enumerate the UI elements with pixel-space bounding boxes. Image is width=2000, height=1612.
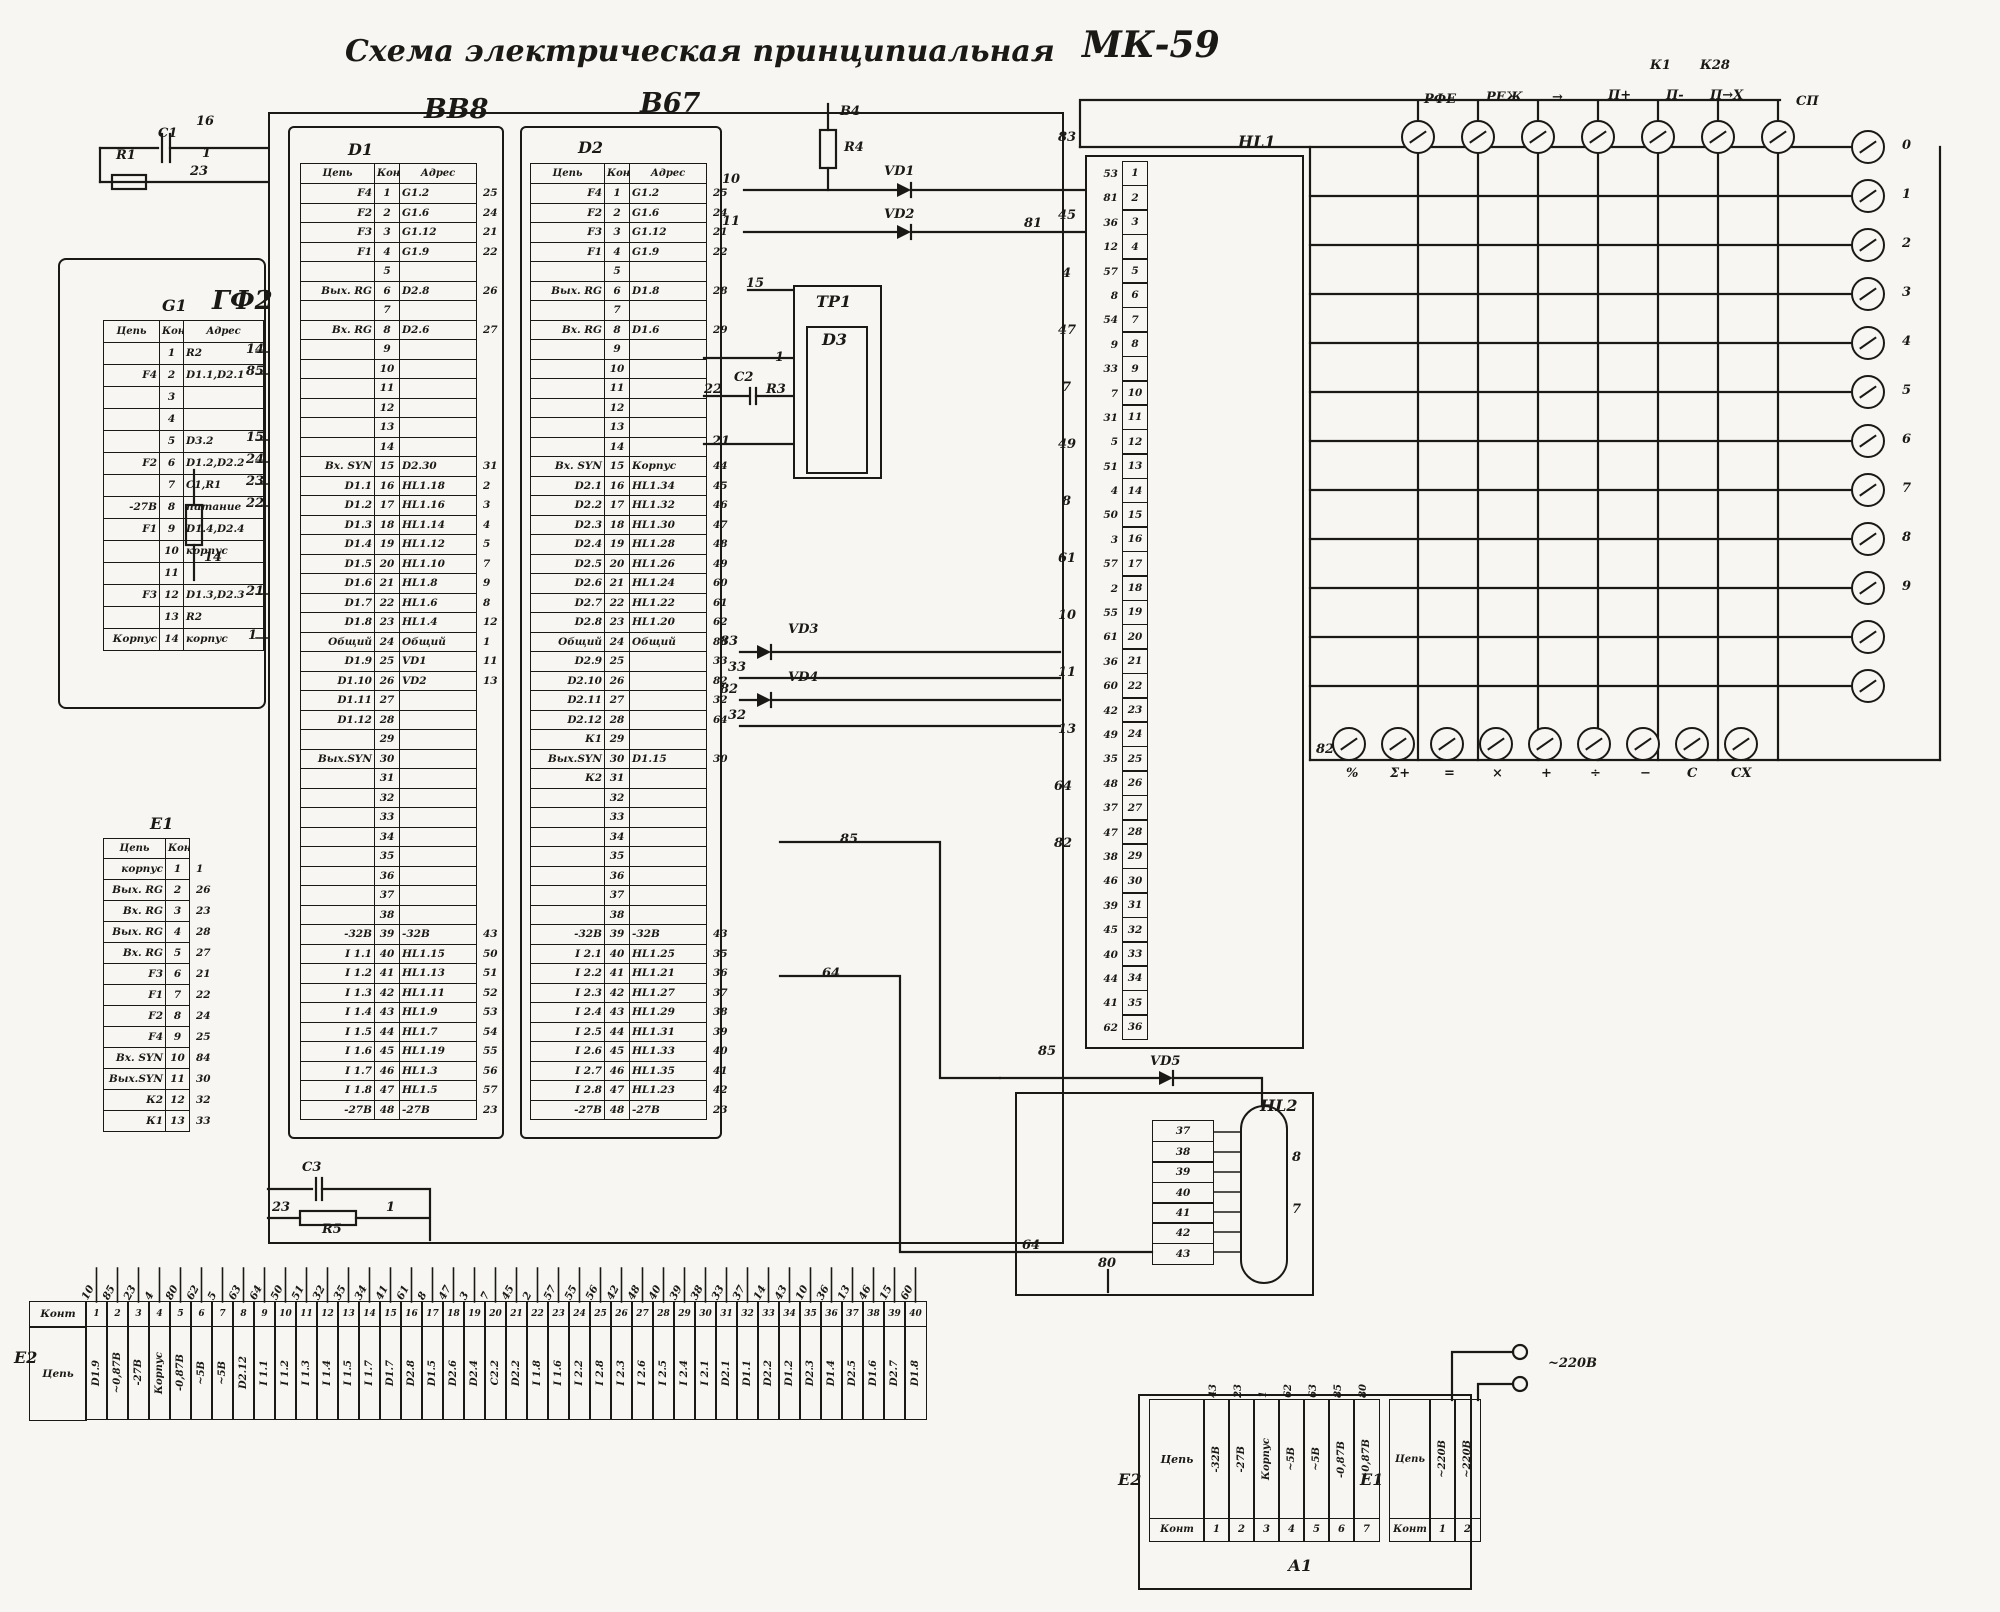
address xyxy=(400,886,477,906)
table-row: F1 9 D1.4,D2.4 xyxy=(104,519,264,541)
key-button[interactable] xyxy=(1479,727,1513,761)
key-button[interactable] xyxy=(1641,120,1675,154)
wire-number: 62 xyxy=(707,613,737,633)
address: HL1.31 xyxy=(630,1022,707,1042)
wire-number-cell: 1 xyxy=(1254,1368,1279,1400)
signal-name: F2 xyxy=(104,453,160,475)
pin-number: 21 xyxy=(605,574,630,594)
hl1-pin-row: 46 30 xyxy=(1090,869,1148,893)
address: HL1.10 xyxy=(400,554,477,574)
signal-cell: ~220В xyxy=(1454,1399,1481,1519)
pin-number: 31 xyxy=(605,769,630,789)
pin-number: 23 xyxy=(375,613,400,633)
wire-number: 23 xyxy=(477,1100,507,1120)
key-button[interactable] xyxy=(1528,727,1562,761)
key-button[interactable] xyxy=(1851,375,1885,409)
col-header-kont: Конт xyxy=(1149,1518,1205,1542)
signal-cell: D2.1 xyxy=(715,1326,738,1420)
key-button[interactable] xyxy=(1851,179,1885,213)
d3-label: D3 xyxy=(822,330,847,349)
pin-number: 19 xyxy=(1122,600,1148,626)
table-row: 5 D3.2 xyxy=(104,431,264,453)
pin-number: 6 xyxy=(605,281,630,301)
hl1-pin-row: 62 36 xyxy=(1090,1016,1148,1040)
signal-cell: I 1.6 xyxy=(547,1326,570,1420)
pin-number: 11 xyxy=(375,379,400,399)
wire-number-cell: 85 xyxy=(1329,1368,1354,1400)
pin-number: 45 xyxy=(605,1042,630,1062)
key-button[interactable] xyxy=(1851,424,1885,458)
g1-label: G1 xyxy=(162,296,187,315)
pin-number: 48 xyxy=(605,1100,630,1120)
table-row: Вх. RG 5 27 xyxy=(104,943,222,964)
table-row: 33 xyxy=(531,808,737,828)
pin-number: 32 xyxy=(605,788,630,808)
wire-number: 30 xyxy=(707,749,737,769)
key-button[interactable] xyxy=(1851,228,1885,262)
signal-name: D2.3 xyxy=(531,515,605,535)
signal-name: F2 xyxy=(531,203,605,223)
wire-number: 27 xyxy=(477,320,507,340)
table-row: D1.3 18 HL1.14 4 xyxy=(301,515,507,535)
address: HL1.15 xyxy=(400,944,477,964)
signal-name: Общий xyxy=(301,632,375,652)
wire-number: 55 xyxy=(1090,601,1122,625)
signal-name xyxy=(531,886,605,906)
signal-name: Вых.SYN xyxy=(104,1069,166,1090)
table-row: D2.9 25 33 xyxy=(531,652,737,672)
key-button[interactable] xyxy=(1401,120,1435,154)
pin-number: 27 xyxy=(605,691,630,711)
key-button[interactable] xyxy=(1851,669,1885,703)
col-header-cep: Цепь xyxy=(1389,1399,1431,1519)
d1-pin-table: Цепь Конт Адрес F4 1 G1.2 25 F2 2 G1.6 2… xyxy=(300,163,507,1120)
table-row: 13 xyxy=(301,418,507,438)
pin-number: 40 xyxy=(605,944,630,964)
wire-number: 41 xyxy=(707,1061,737,1081)
address: HL1.25 xyxy=(630,944,707,964)
signal-cell: ~5В xyxy=(1278,1399,1305,1519)
signal-cell: C2.2 xyxy=(484,1326,507,1420)
pin-number: 4 xyxy=(1278,1518,1305,1542)
signal-name: I 1.1 xyxy=(301,944,375,964)
signal-name xyxy=(531,788,605,808)
tr1-label: ТР1 xyxy=(816,292,851,311)
pin-number: 27 xyxy=(1122,795,1148,821)
d2-pin-table: Цепь Конт Адрес F4 1 G1.2 25 F2 2 G1.6 2… xyxy=(530,163,737,1120)
pin-number: 23 xyxy=(1122,697,1148,723)
table-row: I 2.7 46 HL1.35 41 xyxy=(531,1061,737,1081)
pin-number: 28 xyxy=(652,1301,675,1327)
e2-long-header: Конт Цепь xyxy=(30,1302,86,1420)
signal-name xyxy=(531,437,605,457)
address xyxy=(630,886,707,906)
pin-number: 3 xyxy=(1253,1518,1280,1542)
signal-name: К1 xyxy=(531,730,605,750)
signal-cell: D1.7 xyxy=(379,1326,402,1420)
table-row: 32 xyxy=(301,788,507,808)
pin-number: 13 xyxy=(605,418,630,438)
table-row: -27В 48 -27В 23 xyxy=(531,1100,737,1120)
pin-number: 31 xyxy=(375,769,400,789)
signal-name xyxy=(301,847,375,867)
pin-number: 43 xyxy=(605,1003,630,1023)
key-button[interactable] xyxy=(1851,277,1885,311)
wire-number: 36 xyxy=(707,964,737,984)
signal-cell: ~220В xyxy=(1429,1399,1456,1519)
pin-number: 1 xyxy=(166,859,190,880)
a1-label: А1 xyxy=(1288,1556,1312,1575)
table-row: D1.8 23 HL1.4 12 xyxy=(301,613,507,633)
wire-number xyxy=(707,379,737,399)
hl1-pin-row: 44 34 xyxy=(1090,967,1148,991)
key-button[interactable] xyxy=(1724,727,1758,761)
page-title: Схема электрическая принципиальная xyxy=(345,34,1055,69)
pin-number: 7 xyxy=(605,301,630,321)
connector-column: 15 39 D2.7 xyxy=(884,1260,905,1419)
key-button[interactable] xyxy=(1701,120,1735,154)
wire-number xyxy=(477,262,507,282)
wire-number: 21 xyxy=(707,223,737,243)
table-row: I 1.8 47 HL1.5 57 xyxy=(301,1081,507,1101)
wire-number xyxy=(477,788,507,808)
pin-number: 6 xyxy=(166,964,190,985)
signal-cell: ~5В xyxy=(1303,1399,1330,1519)
address: -27В xyxy=(400,1100,477,1120)
wire-number: 25 xyxy=(707,184,737,204)
signal-cell: D1.5 xyxy=(421,1326,444,1420)
address: R2 xyxy=(184,607,264,629)
signal-name: I 1.7 xyxy=(301,1061,375,1081)
table-row: К1 29 xyxy=(531,730,737,750)
signal-name: корпус xyxy=(104,859,166,880)
pin-number: 29 xyxy=(1122,843,1148,869)
pin-number: 26 xyxy=(610,1301,633,1327)
address xyxy=(400,301,477,321)
signal-name xyxy=(301,379,375,399)
wire-number: 42 xyxy=(707,1081,737,1101)
table-row: 11 xyxy=(531,379,737,399)
pin-number: 38 xyxy=(862,1301,885,1327)
wire-number: 61 xyxy=(1090,625,1122,649)
signal-name xyxy=(301,730,375,750)
wire-number: 5 xyxy=(1090,430,1122,454)
pin-number: 6 xyxy=(160,453,184,475)
key-button[interactable] xyxy=(1381,727,1415,761)
table-row: D2.1 16 HL1.34 45 xyxy=(531,476,737,496)
wire-number: 2 xyxy=(477,476,507,496)
signal-name: -27В xyxy=(104,497,160,519)
signal-name: F3 xyxy=(531,223,605,243)
key-button[interactable] xyxy=(1851,620,1885,654)
e2-br-label: Е2 xyxy=(1118,1470,1141,1489)
address: -27В xyxy=(630,1100,707,1120)
table-row: 11 xyxy=(301,379,507,399)
wire-number: 1 xyxy=(190,859,222,880)
wire-number: 40 xyxy=(1090,943,1122,967)
pin-number: 2 xyxy=(166,880,190,901)
pin-number: 15 xyxy=(1122,502,1148,528)
address: HL1.34 xyxy=(630,476,707,496)
table-row: корпус 1 1 xyxy=(104,859,222,880)
connector-column: 50 10 I 1.2 xyxy=(275,1260,296,1419)
col-header-adres: Адрес xyxy=(184,321,264,343)
signal-name: F4 xyxy=(531,184,605,204)
d1-label: D1 xyxy=(348,140,373,159)
key-button[interactable] xyxy=(1461,120,1495,154)
table-row: 12 xyxy=(301,398,507,418)
table-row: 5 xyxy=(301,262,507,282)
table-row: D2.12 28 64 xyxy=(531,710,737,730)
wire-number: 49 xyxy=(1090,723,1122,747)
connector-column: 39 29 I 2.4 xyxy=(674,1260,695,1419)
wire-number: 33 xyxy=(190,1111,222,1132)
table-row: D2.11 27 32 xyxy=(531,691,737,711)
table-row: 14 xyxy=(531,437,737,457)
signal-name xyxy=(104,431,160,453)
address: HL1.22 xyxy=(630,593,707,613)
wire-number xyxy=(477,827,507,847)
pin-number: 46 xyxy=(605,1061,630,1081)
hl1-pin-row: 42 23 xyxy=(1090,699,1148,723)
wire-number: 57 xyxy=(477,1081,507,1101)
address xyxy=(630,730,707,750)
wire-number: 23 xyxy=(190,901,222,922)
signal-cell: I 2.3 xyxy=(610,1326,633,1420)
signal-name: I 2.1 xyxy=(531,944,605,964)
pin-number: 8 xyxy=(375,320,400,340)
signal-name: F4 xyxy=(301,184,375,204)
table-row: F3 3 G1.12 21 xyxy=(531,223,737,243)
table-row: I 1.5 44 HL1.7 54 xyxy=(301,1022,507,1042)
table-row: D1.5 20 HL1.10 7 xyxy=(301,554,507,574)
table-row: -32В 39 -32В 43 xyxy=(301,925,507,945)
pin-number: 12 xyxy=(1122,429,1148,455)
signal-cell: Корпус xyxy=(1253,1399,1280,1519)
connector-column: 62 6 ~5В xyxy=(191,1260,212,1419)
pin-number: 37 xyxy=(841,1301,864,1327)
pin-number: 19 xyxy=(605,535,630,555)
wire-number: 4 xyxy=(1090,479,1122,503)
pin-number: 34 xyxy=(1122,965,1148,991)
keyboard-digit-column xyxy=(1851,130,1885,703)
signal-cell: I 2.5 xyxy=(652,1326,675,1420)
key-button[interactable] xyxy=(1521,120,1555,154)
key-button[interactable] xyxy=(1851,571,1885,605)
address xyxy=(400,710,477,730)
pin-number: 33 xyxy=(375,808,400,828)
signal-cell: D2.2 xyxy=(505,1326,528,1420)
address xyxy=(630,808,707,828)
col-header-kont: Конт xyxy=(375,164,400,184)
hl1-pin-row: 54 7 xyxy=(1090,308,1148,332)
e1-connector-table: Цепь Конт корпус 1 1 Вых. RG 2 26 Вх. RG… xyxy=(103,838,222,1132)
wire-number: 3 xyxy=(477,496,507,516)
address: HL1.32 xyxy=(630,496,707,516)
col-header-kont: Конт xyxy=(160,321,184,343)
wire-number xyxy=(477,359,507,379)
pin-number: 12 xyxy=(166,1090,190,1111)
table-row: 5 xyxy=(531,262,737,282)
pin-number: 24 xyxy=(375,632,400,652)
connector-column: 56 25 I 2.8 xyxy=(590,1260,611,1419)
address: D3.2 xyxy=(184,431,264,453)
pin-number: 9 xyxy=(375,340,400,360)
key-button[interactable] xyxy=(1675,727,1709,761)
wire-number: 23 xyxy=(707,1100,737,1120)
signal-name xyxy=(301,886,375,906)
hl2-pin-row: 42 xyxy=(1152,1222,1214,1244)
e2-long-table: 10 1 D1.9 85 2 ~0,87В 23 3 -27В 4 4 Корп… xyxy=(86,1260,926,1419)
wire-number: 33 xyxy=(707,652,737,672)
key-button[interactable] xyxy=(1851,326,1885,360)
d2-label: D2 xyxy=(578,138,603,157)
table-row: F4 9 25 xyxy=(104,1027,222,1048)
wire-number: 83 xyxy=(707,632,737,652)
signal-cell: D2.12 xyxy=(232,1326,255,1420)
pin-number: 35 xyxy=(1122,990,1148,1016)
wire-number: 45 xyxy=(707,476,737,496)
wire-number: 57 xyxy=(1090,552,1122,576)
signal-name: F3 xyxy=(104,964,166,985)
table-row: 1 R2 xyxy=(104,343,264,365)
pin-number: 41 xyxy=(375,964,400,984)
hl1-pin-row: 41 35 xyxy=(1090,991,1148,1015)
gf2-label: ГФ2 xyxy=(212,286,273,316)
wire-number: 24 xyxy=(477,203,507,223)
key-button[interactable] xyxy=(1430,727,1464,761)
signal-cell: I 1.8 xyxy=(526,1326,549,1420)
key-button[interactable] xyxy=(1577,727,1611,761)
signal-cell: I 2.6 xyxy=(631,1326,654,1420)
table-row: 4 xyxy=(104,409,264,431)
pin-number: 20 xyxy=(1122,624,1148,650)
table-row: К1 13 33 xyxy=(104,1111,222,1132)
pin-number: 16 xyxy=(375,476,400,496)
table-row: 32 xyxy=(531,788,737,808)
address: D2.8 xyxy=(400,281,477,301)
address: HL1.3 xyxy=(400,1061,477,1081)
hl1-pin-row: 38 29 xyxy=(1090,845,1148,869)
signal-name: F1 xyxy=(531,242,605,262)
pin-number: 17 xyxy=(375,496,400,516)
wire-number xyxy=(707,847,737,867)
key-button[interactable] xyxy=(1332,727,1366,761)
wire-number xyxy=(707,827,737,847)
g1-connector-table: Цепь Конт Адрес 1 R2 F4 2 D1.1,D2.1 3 4 xyxy=(103,320,264,651)
signal-name xyxy=(301,827,375,847)
table-row: I 1.7 46 HL1.3 56 xyxy=(301,1061,507,1081)
signal-name: D2.8 xyxy=(531,613,605,633)
address xyxy=(630,359,707,379)
signal-cell: D1.9 xyxy=(85,1326,108,1420)
signal-name xyxy=(531,262,605,282)
table-row: F3 3 G1.12 21 xyxy=(301,223,507,243)
pin-number: 12 xyxy=(316,1301,339,1327)
wire-number: 84 xyxy=(190,1048,222,1069)
address xyxy=(630,847,707,867)
table-row: 10 корпус xyxy=(104,541,264,563)
address: HL1.33 xyxy=(630,1042,707,1062)
pin-number: 14 xyxy=(1122,478,1148,504)
address xyxy=(400,437,477,457)
signal-name: F2 xyxy=(301,203,375,223)
table-row: F3 12 D1.3,D2.3 xyxy=(104,585,264,607)
signal-cell: D1.6 xyxy=(862,1326,885,1420)
signal-cell: I 2.4 xyxy=(673,1326,696,1420)
key-button[interactable] xyxy=(1851,522,1885,556)
signal-name: I 2.7 xyxy=(531,1061,605,1081)
hl2-label: HL2 xyxy=(1260,1096,1298,1115)
signal-name: D1.5 xyxy=(301,554,375,574)
pin-number: 8 xyxy=(605,320,630,340)
connector-column: 43 -32В 1 xyxy=(1204,1368,1229,1541)
wire-number: 9 xyxy=(1090,333,1122,357)
connector-column: 40 28 I 2.5 xyxy=(653,1260,674,1419)
signal-name: F4 xyxy=(104,365,160,387)
signal-name xyxy=(104,409,160,431)
wire-number: 11 xyxy=(477,652,507,672)
wire-number xyxy=(707,788,737,808)
col-header-adres: Адрес xyxy=(400,164,477,184)
key-button[interactable] xyxy=(1581,120,1615,154)
wire-number: 53 xyxy=(1090,162,1122,186)
wire-number: 60 xyxy=(707,574,737,594)
wire-number: 82 xyxy=(707,671,737,691)
connector-column: 63 8 D2.12 xyxy=(233,1260,254,1419)
table-row: 9 xyxy=(301,340,507,360)
table-row: F2 8 24 xyxy=(104,1006,222,1027)
wire-number: 2 xyxy=(1090,577,1122,601)
pin-number: 14 xyxy=(605,437,630,457)
e2-power-header: Цепь Конт xyxy=(1150,1368,1204,1541)
signal-name: I 2.5 xyxy=(531,1022,605,1042)
pin-number: 47 xyxy=(605,1081,630,1101)
key-button[interactable] xyxy=(1626,727,1660,761)
wire-number: 35 xyxy=(1090,747,1122,771)
key-button[interactable] xyxy=(1761,120,1795,154)
signal-name: К1 xyxy=(104,1111,166,1132)
hl1-pin-row: 53 1 xyxy=(1090,162,1148,186)
key-button[interactable] xyxy=(1851,473,1885,507)
wire-number xyxy=(477,749,507,769)
table-row: F2 2 G1.6 24 xyxy=(301,203,507,223)
hl1-pin-row: 45 32 xyxy=(1090,918,1148,942)
key-button[interactable] xyxy=(1851,130,1885,164)
wire-number xyxy=(477,866,507,886)
pin-number: 7 xyxy=(1122,307,1148,333)
wire-number: 12 xyxy=(477,613,507,633)
signal-name xyxy=(531,359,605,379)
signal-name: D1.11 xyxy=(301,691,375,711)
connector-column: 41 15 D1.7 xyxy=(380,1260,401,1419)
bb8-label: ВВ8 xyxy=(424,94,488,125)
signal-name: D2.4 xyxy=(531,535,605,555)
signal-name xyxy=(104,475,160,497)
signal-name: I 1.8 xyxy=(301,1081,375,1101)
signal-cell: D2.2 xyxy=(757,1326,780,1420)
wire-number: 7 xyxy=(477,554,507,574)
pin-number: 27 xyxy=(375,691,400,711)
connector-column: 34 14 I 1.7 xyxy=(359,1260,380,1419)
pin-number: 6 xyxy=(375,281,400,301)
pin-number: 9 xyxy=(605,340,630,360)
table-row: D2.5 20 HL1.26 49 xyxy=(531,554,737,574)
col-header-kont: Конт xyxy=(605,164,630,184)
wire-number: 49 xyxy=(707,554,737,574)
signal-cell: D1.4 xyxy=(820,1326,843,1420)
hl1-pin-row: 2 18 xyxy=(1090,577,1148,601)
